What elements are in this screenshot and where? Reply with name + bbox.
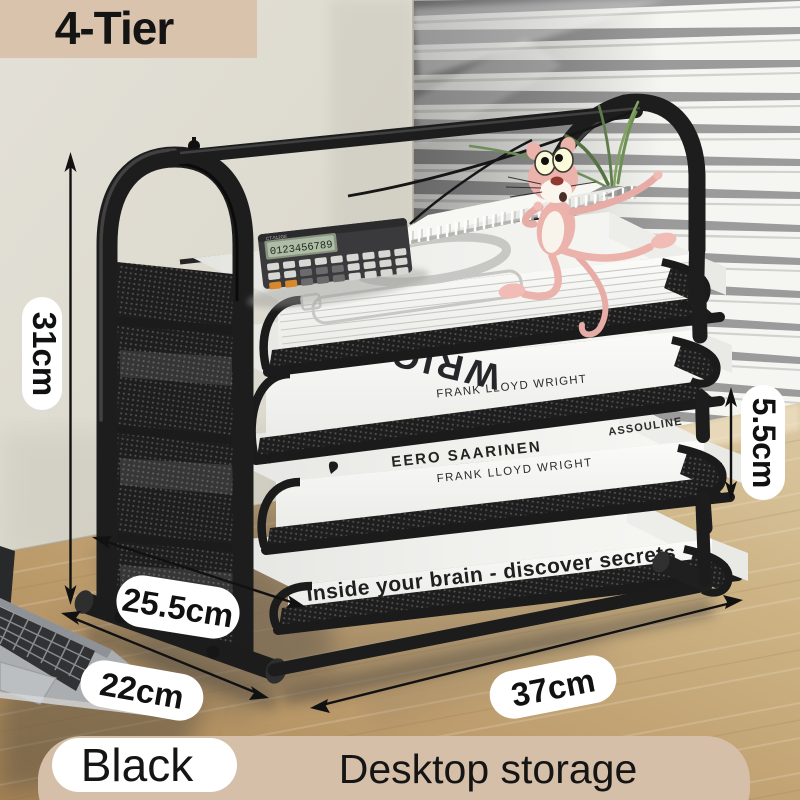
svg-text:Black: Black bbox=[81, 739, 194, 791]
svg-text:4-Tier: 4-Tier bbox=[55, 2, 175, 54]
svg-text:Desktop storage: Desktop storage bbox=[339, 746, 638, 792]
svg-text:31cm: 31cm bbox=[26, 312, 63, 396]
svg-text:5.5cm: 5.5cm bbox=[746, 398, 782, 489]
